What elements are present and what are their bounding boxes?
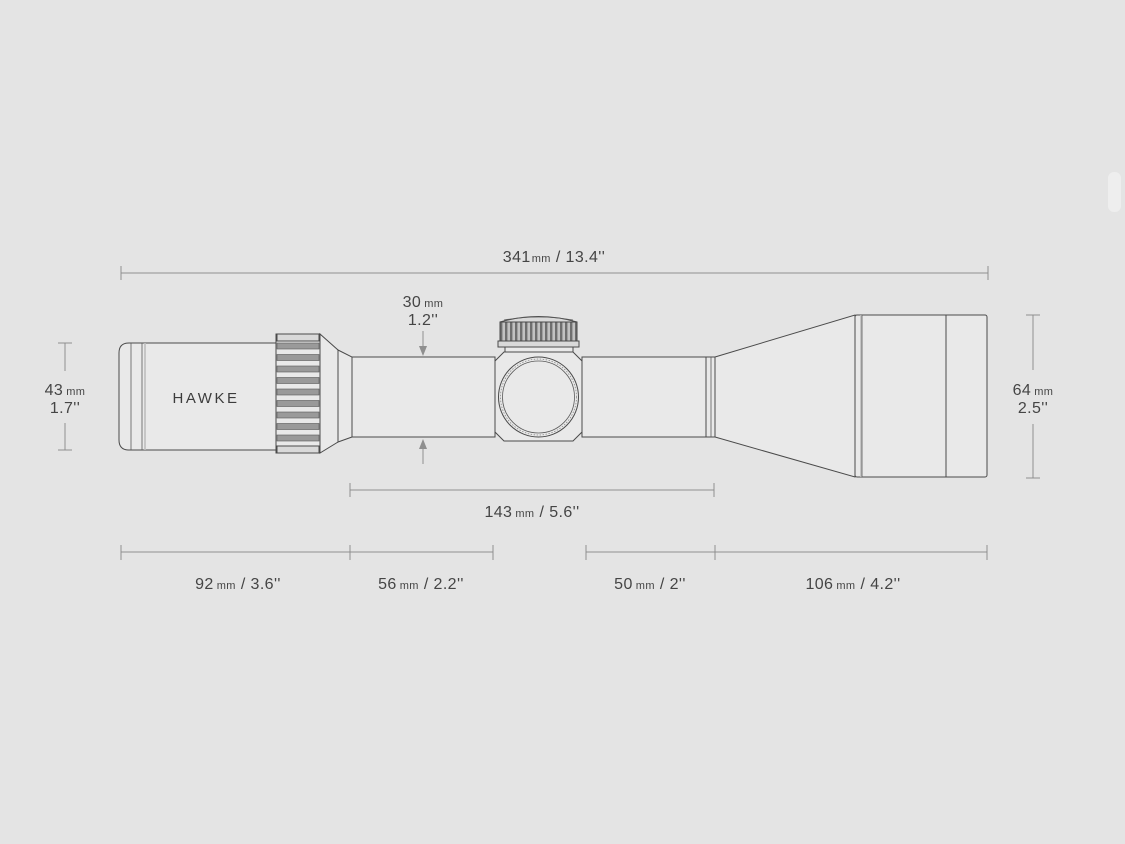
zoom-ring <box>276 334 352 453</box>
rib <box>277 343 319 349</box>
turret-flange <box>498 341 579 347</box>
zoom-ring-top-cap <box>277 334 319 341</box>
rib <box>277 401 319 407</box>
rib <box>277 355 319 361</box>
turret-saddle <box>495 317 582 442</box>
dim-label-objective-in: 2.5'' <box>1018 400 1048 417</box>
turret-knurled-band <box>500 322 577 341</box>
tube-end-ring <box>706 357 715 437</box>
hawke-logo: HAWKE <box>173 390 240 407</box>
scope-dimension-diagram: HAWKE <box>0 0 1125 844</box>
dim-label-eyepiece-in: 1.7'' <box>50 400 80 417</box>
objective-housing <box>855 315 987 477</box>
rib <box>277 412 319 418</box>
rib <box>277 435 319 441</box>
elevation-turret <box>498 317 579 354</box>
rib <box>277 378 319 384</box>
tube-front-section <box>582 357 706 437</box>
rib <box>277 366 319 372</box>
tube-taper <box>338 350 352 442</box>
zoom-ring-bottom-cap <box>277 446 319 453</box>
zoom-ring-taper <box>320 334 338 453</box>
rib <box>277 424 319 430</box>
side-turret-outer-ring <box>499 357 579 437</box>
side-turret-circle <box>499 357 579 437</box>
eyepiece: HAWKE <box>119 343 276 450</box>
tube-rear-section <box>352 357 495 437</box>
scroll-indicator[interactable] <box>1108 172 1121 212</box>
zoom-ring-ribs <box>277 343 319 441</box>
dim-label-tube-in: 1.2'' <box>408 312 438 329</box>
rib <box>277 389 319 395</box>
